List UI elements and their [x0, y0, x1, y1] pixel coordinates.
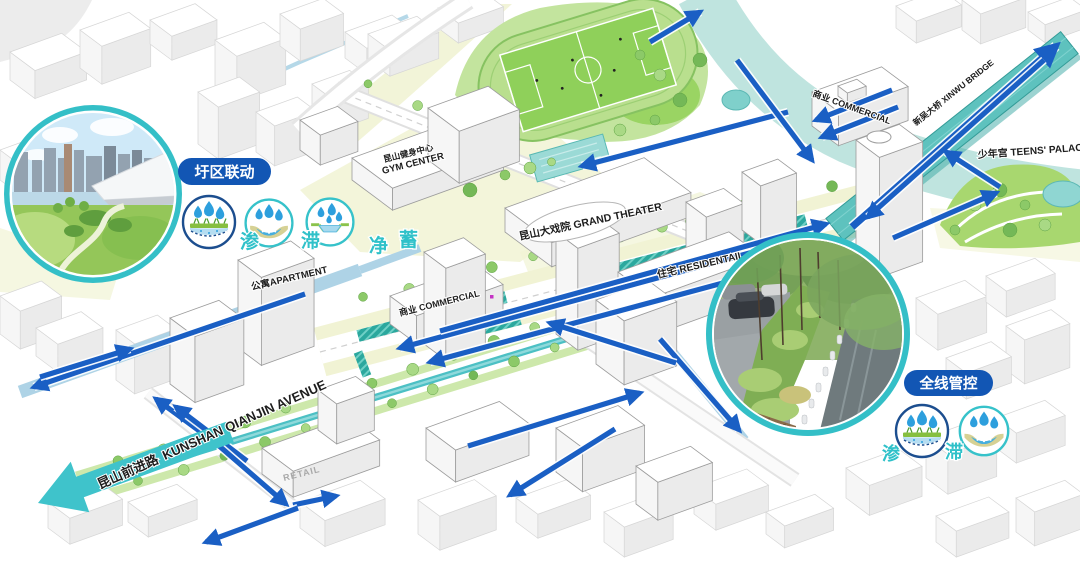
- infiltrate-icon: [896, 405, 948, 457]
- infiltrate-icon: [183, 196, 235, 248]
- detain-icon: [960, 407, 1008, 455]
- sponge-city-masterplan: 昆山健身中心 GYM CENTER 昆山大戏院 GRAND THEATER 公寓…: [0, 0, 1080, 574]
- seep-char: 渗: [882, 443, 901, 464]
- full-line-control-pill-label: 全线管控: [919, 375, 978, 393]
- pond: [722, 90, 750, 110]
- masterplan-canvas: 昆山健身中心 GYM CENTER 昆山大戏院 GRAND THEATER 公寓…: [0, 0, 1080, 574]
- store-char: 蓄: [399, 228, 418, 251]
- polder-linkage-pill-label: 圩区联动: [194, 163, 254, 181]
- seep-char: 渗: [240, 230, 260, 253]
- tower-dome: [867, 131, 891, 143]
- detain-char: 滞: [945, 442, 963, 462]
- purify-char: 净: [369, 234, 388, 257]
- poi-marker: [490, 295, 494, 299]
- palace-pond: [1043, 181, 1080, 207]
- detain-char: 滞: [301, 230, 320, 252]
